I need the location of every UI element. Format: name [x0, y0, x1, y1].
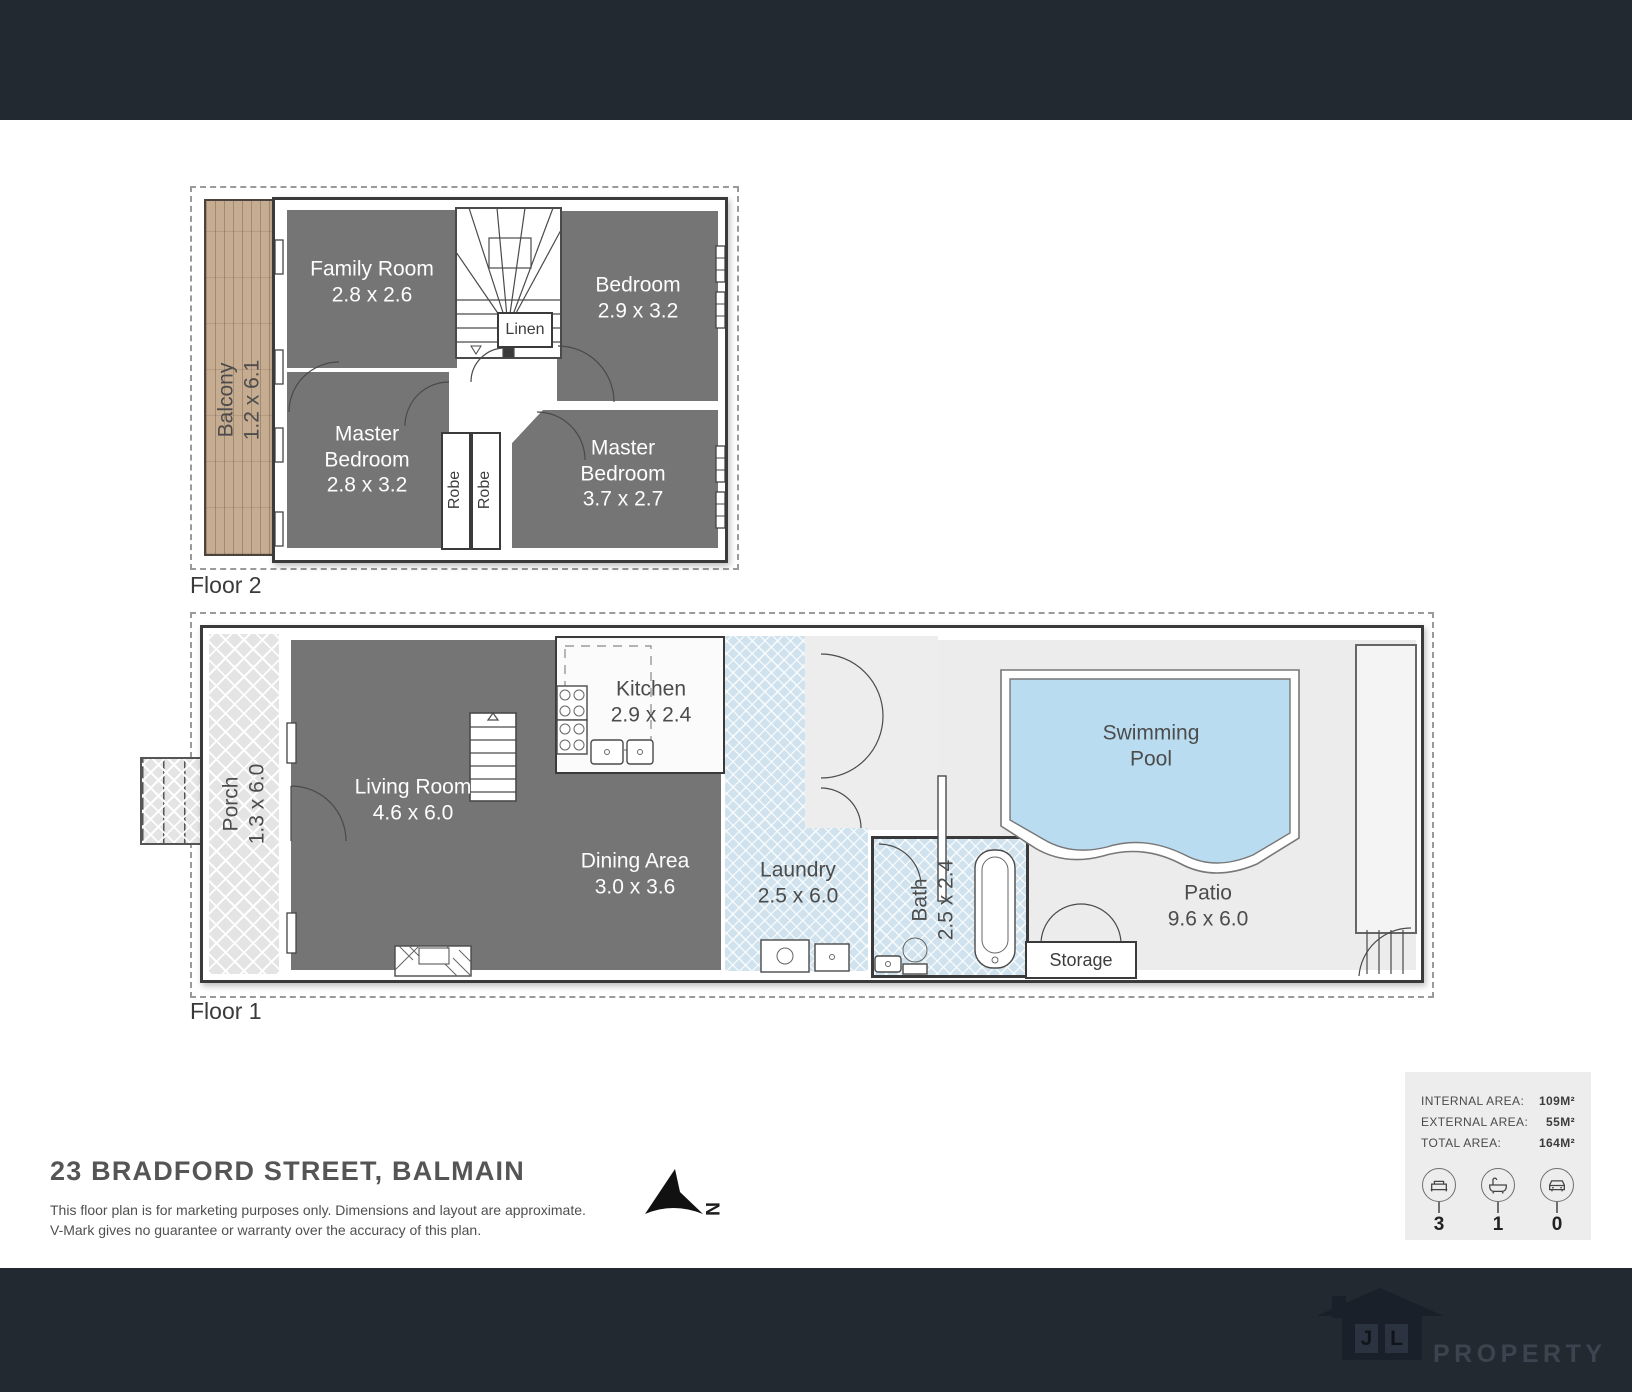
balcony-label: Balcony1.2 x 6.1 [213, 360, 264, 441]
total-area-value: 164M² [1539, 1136, 1575, 1150]
living-room-label: Living Room4.6 x 6.0 [323, 774, 503, 825]
dining-area-label: Dining Area3.0 x 3.6 [545, 848, 725, 899]
floorplan-page: Balcony1.2 x 6.1 [0, 0, 1632, 1392]
bedroom-label: Bedroom2.9 x 3.2 [568, 272, 708, 323]
beds-stat: 3 [1422, 1168, 1456, 1236]
area-rows: INTERNAL AREA: 109M² EXTERNAL AREA: 55M²… [1405, 1072, 1591, 1150]
total-area-label: TOTAL AREA: [1421, 1136, 1501, 1150]
bath-icon [1487, 1174, 1509, 1196]
bed-icon [1428, 1174, 1450, 1196]
logo-initial-j: J [1355, 1324, 1378, 1353]
total-area-row: TOTAL AREA: 164M² [1421, 1136, 1575, 1150]
house-logo-icon [1318, 1282, 1448, 1382]
external-area-row: EXTERNAL AREA: 55M² [1421, 1115, 1575, 1129]
internal-area-label: INTERNAL AREA: [1421, 1094, 1524, 1108]
robe-1-label: Robe [446, 471, 464, 509]
patio-label: Patio9.6 x 6.0 [1128, 880, 1288, 931]
internal-area-value: 109M² [1539, 1094, 1575, 1108]
brand-logo: J L PROPERTY [1318, 1282, 1620, 1382]
floor1-building: Porch1.3 x 6.0 Living Room4.6 x 6.0 Kitc… [200, 625, 1424, 983]
master-bedroom-left-label: Master Bedroom2.8 x 3.2 [307, 422, 427, 499]
top-bar [0, 0, 1632, 120]
page-title: 23 BRADFORD STREET, BALMAIN [50, 1156, 525, 1187]
swimming-pool-label: Swimming Pool [1086, 720, 1216, 771]
disclaimer-text: This floor plan is for marketing purpose… [50, 1200, 586, 1241]
baths-count: 1 [1493, 1214, 1504, 1236]
robe-2-label: Robe [476, 471, 494, 509]
laundry-label: Laundry2.5 x 6.0 [728, 857, 868, 908]
porch-steps [140, 757, 208, 845]
cars-count: 0 [1552, 1214, 1563, 1236]
logo-initial-l: L [1385, 1324, 1408, 1353]
external-area-value: 55M² [1546, 1115, 1575, 1129]
linen-closet: Linen [497, 312, 553, 348]
hall-wardrobe-area [805, 636, 938, 830]
disclaimer-line-2: V-Mark gives no guarantee or warranty ov… [50, 1220, 586, 1240]
baths-stat: 1 [1481, 1168, 1515, 1236]
beds-count: 3 [1434, 1214, 1445, 1236]
area-info-box: INTERNAL AREA: 109M² EXTERNAL AREA: 55M²… [1405, 1072, 1591, 1240]
cars-stat: 0 [1540, 1168, 1574, 1236]
master-bedroom-right-label: Master Bedroom3.7 x 2.7 [563, 436, 683, 513]
porch-label: Porch1.3 x 6.0 [218, 764, 269, 845]
north-label: N [700, 1202, 722, 1216]
car-icon [1546, 1174, 1568, 1196]
family-room-label: Family Room2.8 x 2.6 [292, 256, 452, 307]
floor2-building: Family Room2.8 x 2.6 Bedroom2.9 x 3.2 Ma… [272, 197, 728, 563]
bath-label: Bath2.5 x 2.4 [907, 860, 958, 941]
north-arrow-icon [643, 1166, 705, 1218]
internal-area-row: INTERNAL AREA: 109M² [1421, 1094, 1575, 1108]
floor2-label: Floor 2 [190, 572, 262, 599]
kitchen-label: Kitchen2.9 x 2.4 [576, 676, 726, 727]
floor1-label: Floor 1 [190, 998, 262, 1025]
external-area-label: EXTERNAL AREA: [1421, 1115, 1528, 1129]
property-stats: 3 1 0 [1405, 1168, 1591, 1236]
storage-label: Storage [1025, 941, 1137, 979]
logo-brand-text: PROPERTY [1433, 1340, 1607, 1369]
side-walkway [1355, 644, 1417, 934]
disclaimer-line-1: This floor plan is for marketing purpose… [50, 1200, 586, 1220]
